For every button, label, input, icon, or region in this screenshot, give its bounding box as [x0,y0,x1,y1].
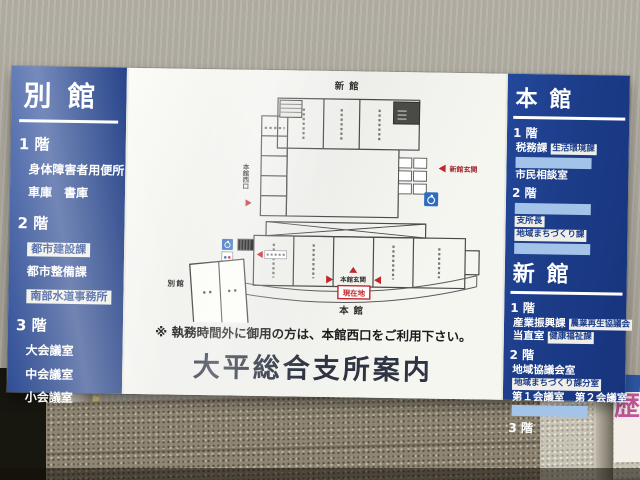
directory-line: 当直室健康福祉課 [513,331,622,344]
photo-scene: 歴 別館 1 階身体障害者用便所車庫 書庫2 階都市建設課都市整備課南部水道事務… [0,0,640,480]
annex-panel: 別館 1 階身体障害者用便所車庫 書庫2 階都市建設課都市整備課南部水道事務所3… [7,66,129,394]
floor-label: 1 階 [19,133,118,156]
plan-label-main-wing: 本館 [339,305,368,317]
directory-item: 車庫 書庫 [28,186,88,201]
building-header: 本館 [513,81,626,121]
entrance-arrow-icon [326,275,333,283]
annex-panel-body: 1 階身体障害者用便所車庫 書庫2 階都市建設課都市整備課南部水道事務所3 階大… [15,133,118,407]
floor-label: 1 階 [513,124,625,143]
directory-line: 身体障害者用便所 [28,159,117,179]
you-are-here-marker: 現在地 [338,286,370,299]
blank-label [514,243,590,255]
directory-line [515,203,624,216]
sign-title: 大平総合支所案内 [124,344,502,389]
directory-line: 地域まちづくり課 [514,229,623,242]
restroom-stalls [398,158,426,194]
directory-item: 地域まちづくり課分室 [512,378,601,391]
directory-line: 地域まちづくり課分室 [512,378,621,391]
directory-line: 都市整備課 [27,262,116,282]
plan-label-main-entrance: 本館玄関 [340,275,367,284]
directory-line: 地域協議会室 [512,365,621,378]
floor-label: 2 階 [17,212,116,235]
floor-label: 1 階 [510,299,622,318]
directory-item: 地域まちづくり課 [514,229,586,241]
entrance-arrow-icon [374,276,381,284]
entrance-arrow-icon [349,267,357,273]
right-panel-body: 本館1 階税務課生活環境課市民相談室2 階支所長地域まちづくり課新館1 階産業振… [508,81,626,438]
directory-line: 市民相談室 [515,169,624,182]
plan-label-annex: 別館 [166,278,185,288]
directory-sign-board: 別館 1 階身体障害者用便所車庫 書庫2 階都市建設課都市整備課南部水道事務所3… [7,66,630,402]
floor-label: 3 階 [16,315,115,338]
directory-item: 産業振興課 [513,318,566,330]
blank-label [512,405,588,417]
directory-item: 身体障害者用便所 [28,162,124,178]
directory-line [515,156,624,169]
you-are-here-label: 現在地 [343,288,366,298]
directory-item: 都市建設課 [27,242,90,258]
new-entrance-arrow-icon [439,164,446,172]
west-exit-sign-small [257,250,287,258]
directory-item: 南部水道事務所 [26,289,111,305]
directory-line: 産業振興課農業再生協議会 [513,318,622,331]
floor-label: 2 階 [509,346,621,365]
building-outlines [253,98,481,289]
west-exit-arrow-icon [246,199,252,206]
floor-plan-panel: 新館 [124,68,506,400]
main-new-panel: 本館1 階税務課生活環境課市民相談室2 階支所長地域まちづくり課新館1 階産業振… [501,74,630,402]
granite-wall [46,390,576,480]
directory-line [514,243,623,256]
directory-item: 生活環境課 [550,144,597,156]
blank-label [515,203,591,215]
directory-line: 南部水道事務所 [26,285,115,305]
directory-item: 当直室 [513,331,545,343]
plan-label-new-entrance: 新館玄関 [450,165,478,174]
directory-line: 大会議室 [25,341,114,361]
directory-item: 中会議室 [25,367,73,382]
directory-line [512,405,621,418]
building-header: 新館 [510,256,623,296]
floor-plan-drawing: 新館 [125,70,506,327]
floor-label: 3 階 [508,419,620,438]
annex-building [189,258,250,327]
directory-line: 税務課生活環境課 [516,143,625,156]
directory-item: 市民相談室 [515,169,568,181]
directory-item: 健康福祉課 [547,332,594,344]
wheelchair-icon [222,239,233,250]
floor-shadow [0,468,640,480]
directory-line: 第１会議室 第２会議室 [512,392,621,405]
directory-item: 税務課 [516,143,548,155]
directory-line: 都市建設課 [27,238,116,258]
directory-item: 都市整備課 [27,265,87,280]
directory-line: 車庫 書庫 [28,183,117,203]
directory-item: 大会議室 [25,344,73,359]
floor-label: 2 階 [512,184,624,203]
directory-line: 小会議室 [25,387,114,407]
directory-line: 中会議室 [25,364,114,384]
directory-item: 支所長 [515,216,545,228]
directory-item: 小会議室 [25,390,73,405]
wheelchair-icon [424,192,438,206]
directory-item: 農業再生協議会 [568,319,632,331]
directory-item: 第１会議室 第２会議室 [512,392,628,405]
directory-item: 地域協議会室 [512,365,575,378]
directory-line: 支所長 [515,216,624,229]
plan-label-west-exit: 本館西口 [241,162,250,190]
building-header-annex: 別館 [19,74,119,124]
plan-label-new-wing: 新館 [335,80,364,92]
blank-label [515,156,591,168]
